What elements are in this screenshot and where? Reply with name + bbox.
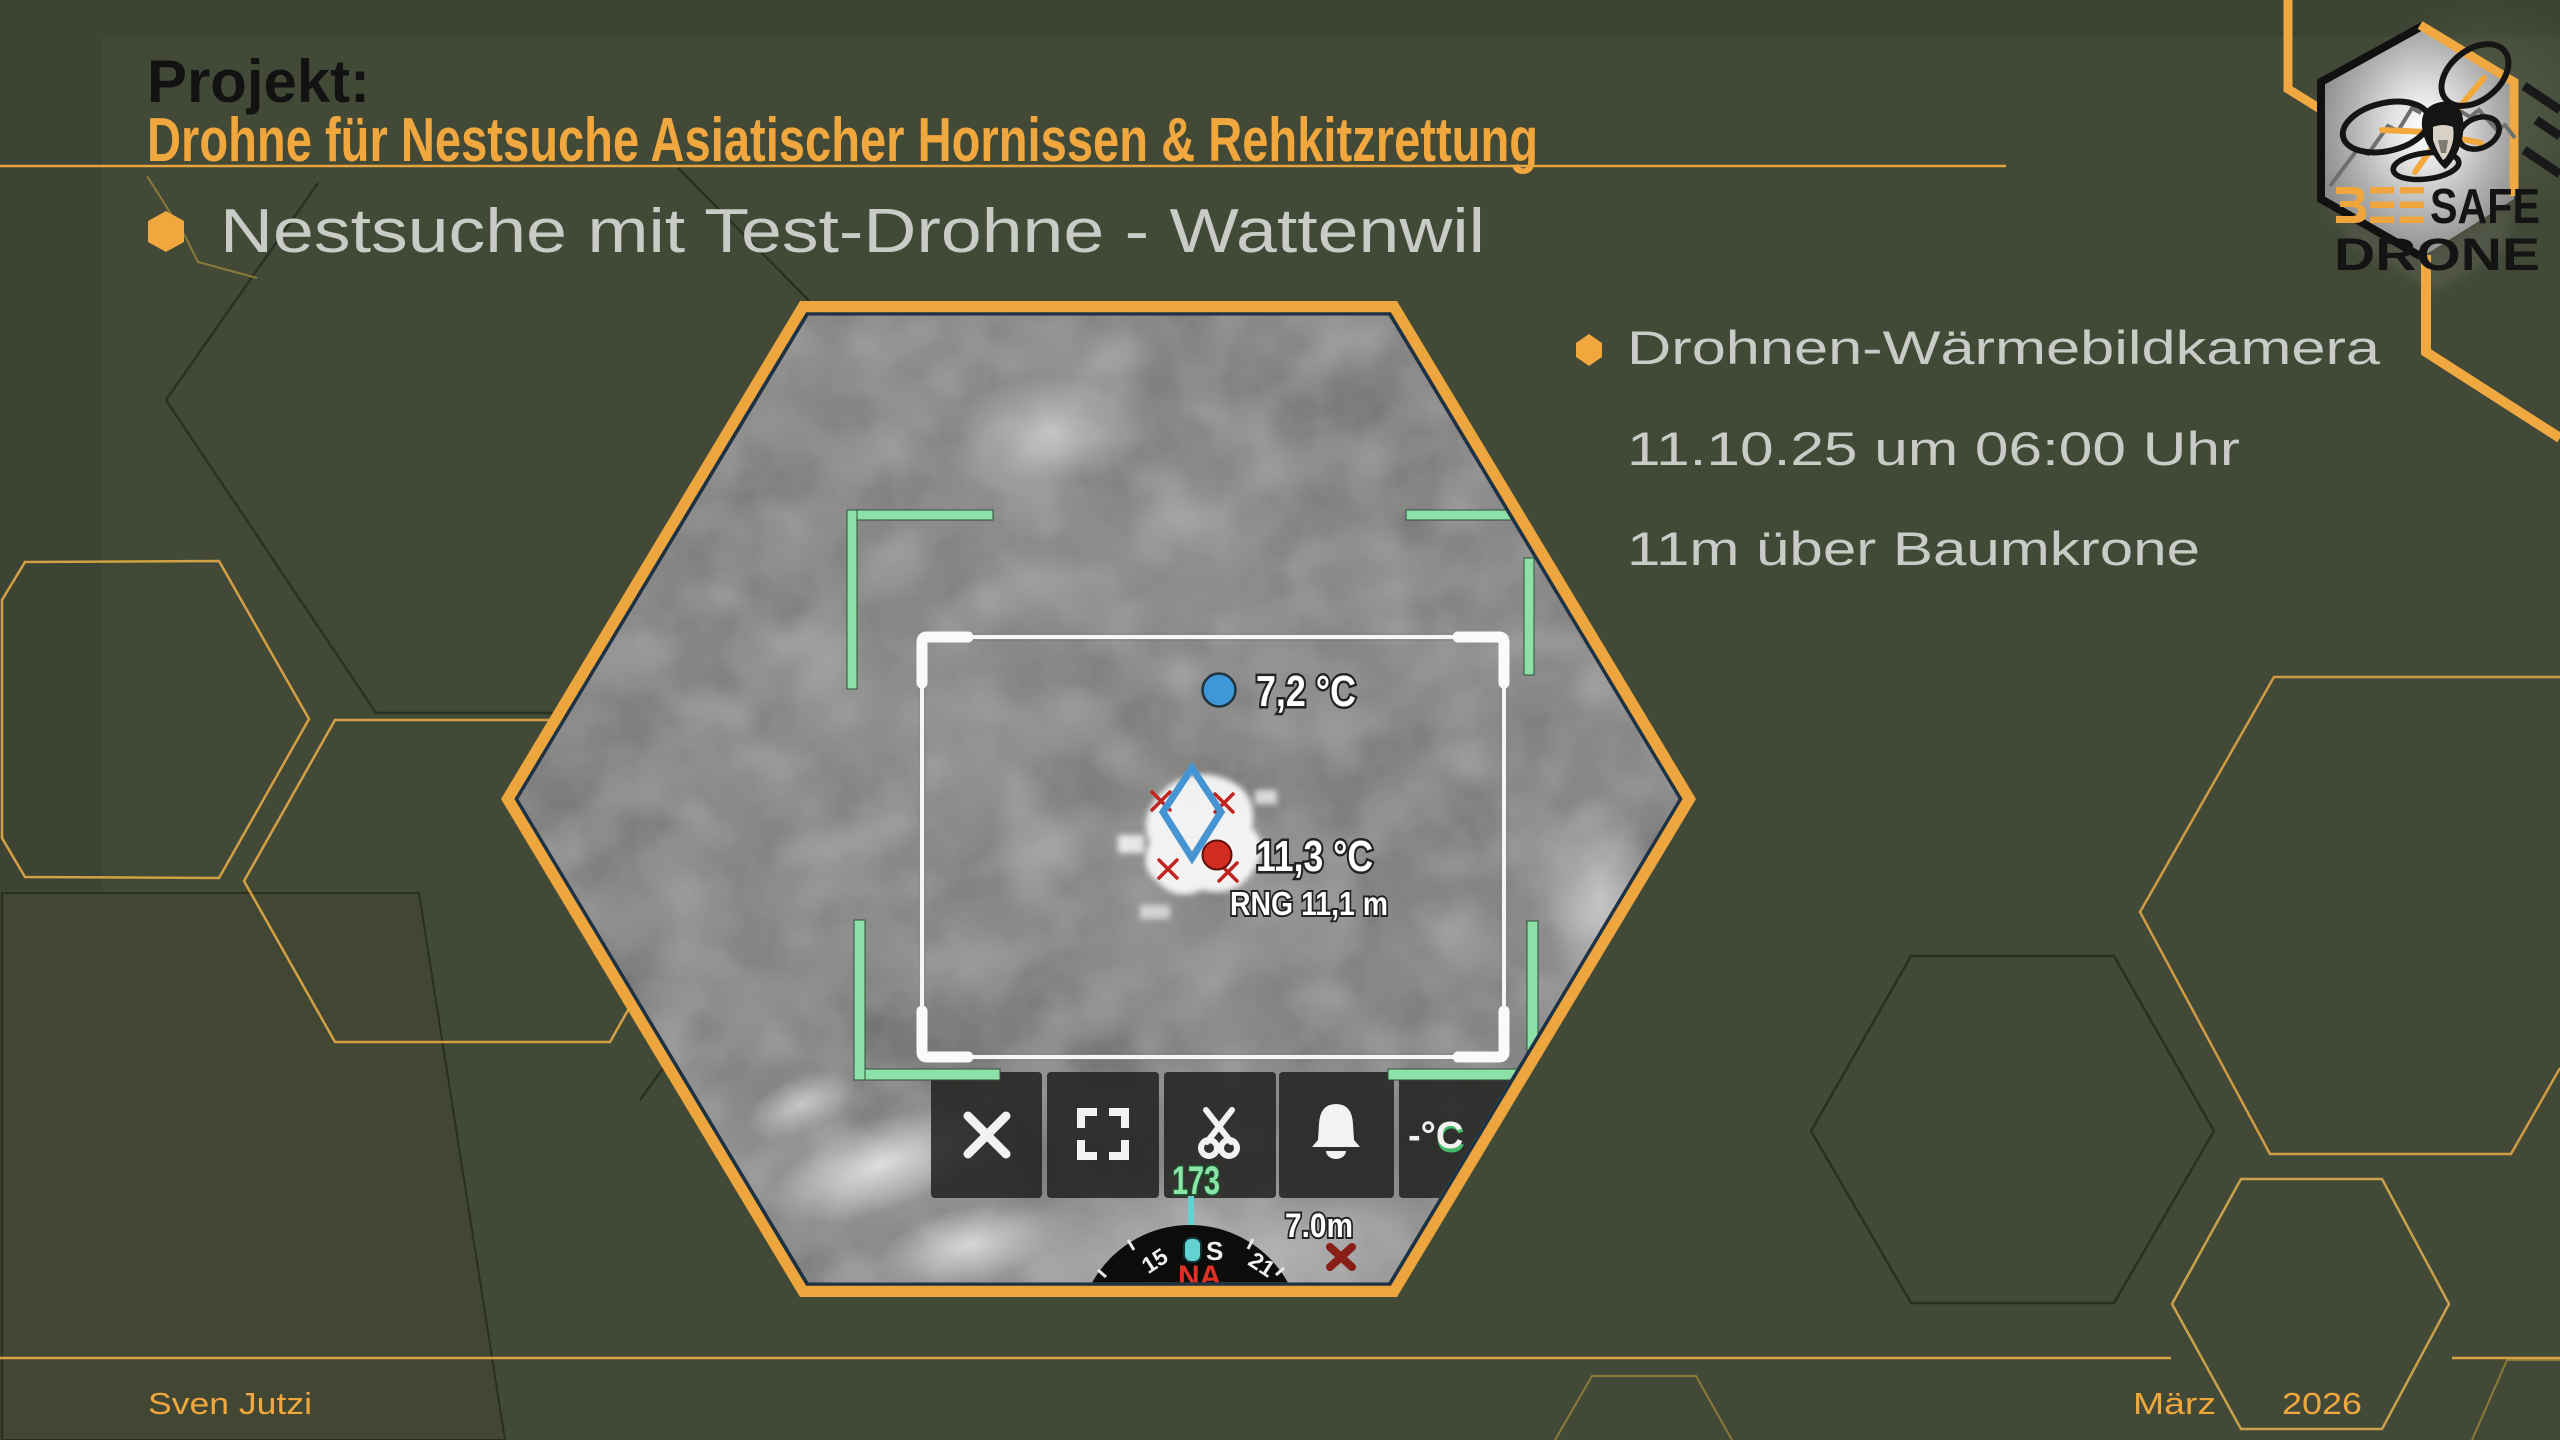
svg-text:März: März: [2133, 1386, 2216, 1421]
svg-text:RNG 11,1 m: RNG 11,1 m: [1230, 885, 1388, 922]
svg-text:-°C: -°C: [1408, 1115, 1463, 1157]
svg-text:DRONE: DRONE: [2334, 229, 2540, 280]
svg-text:Nestsuche mit Test-Drohne - Wa: Nestsuche mit Test-Drohne - Wattenwil: [220, 197, 1485, 266]
svg-text:2026: 2026: [2282, 1386, 2362, 1421]
svg-text:Sven Jutzi: Sven Jutzi: [148, 1386, 312, 1421]
svg-text:11.10.25 um 06:00 Uhr: 11.10.25 um 06:00 Uhr: [1627, 422, 2240, 475]
svg-text:Drohnen-Wärmebildkamera: Drohnen-Wärmebildkamera: [1627, 321, 2381, 374]
svg-text:SAFE: SAFE: [2430, 180, 2540, 234]
svg-text:7,2 °C: 7,2 °C: [1256, 667, 1356, 716]
svg-text:Projekt:: Projekt:: [147, 48, 370, 115]
svg-text:Drohne für Nestsuche Asiatisch: Drohne für Nestsuche Asiatischer Horniss…: [147, 106, 1538, 175]
svg-text:173: 173: [1172, 1159, 1220, 1203]
svg-text:7.0m: 7.0m: [1285, 1207, 1353, 1245]
svg-text:11m über Baumkrone: 11m über Baumkrone: [1627, 522, 2200, 575]
svg-text:11,3 °C: 11,3 °C: [1256, 832, 1373, 881]
